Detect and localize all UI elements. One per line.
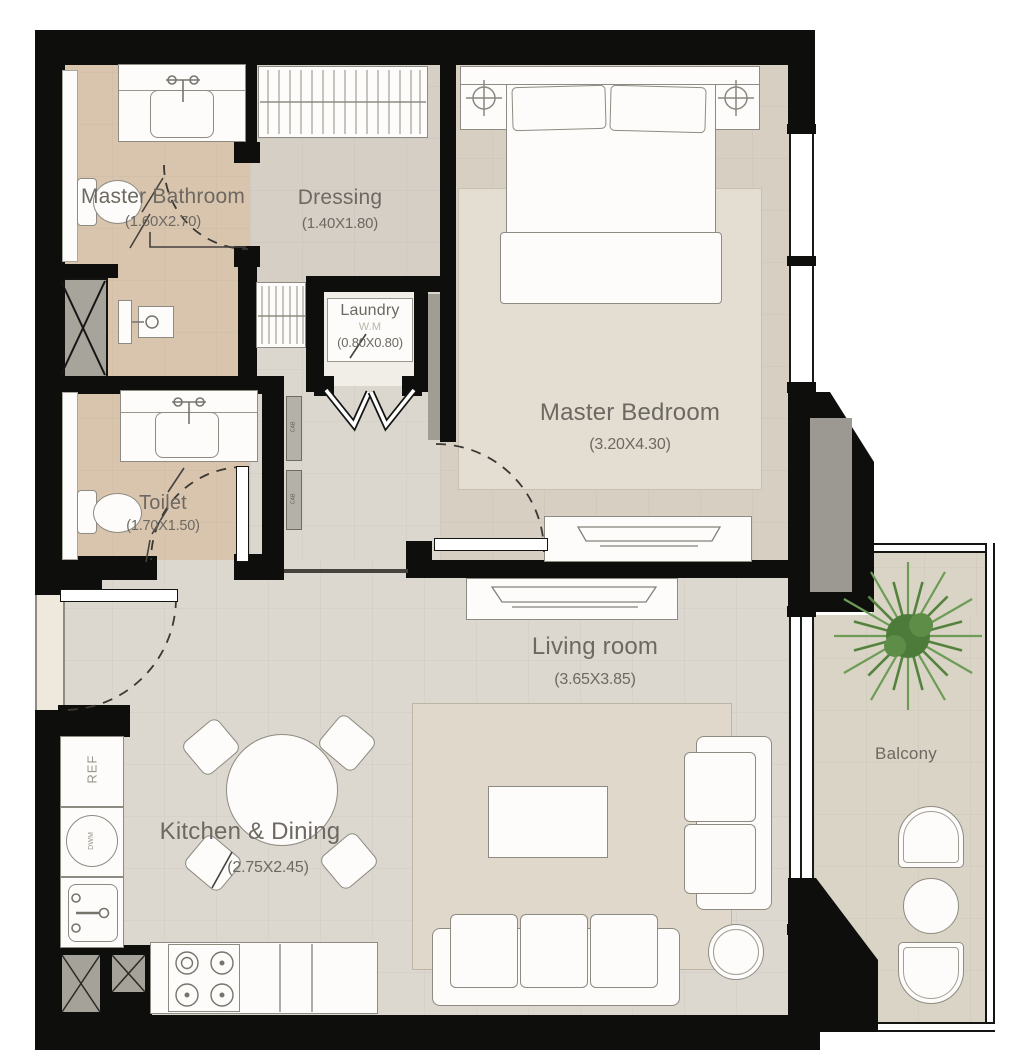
wall-bedroom-left: [440, 60, 456, 442]
refrigerator-label: REF: [60, 762, 124, 776]
cabinet-lower-label-text: CAB: [291, 493, 297, 504]
stove: [168, 944, 240, 1012]
cabinet-upper-label: CAB: [286, 424, 302, 430]
service-shaft-cell-a: [62, 955, 100, 1012]
dressing-dims: (1.40X1.80): [250, 216, 430, 233]
master-bedroom-label: Master Bedroom: [510, 400, 750, 426]
floor-plan: Master Bathroom (1.60X2.70) Dressing (1.…: [0, 0, 1030, 1057]
sofa-cushion-1: [450, 914, 518, 988]
balcony-floor-upper: [872, 548, 990, 620]
balcony-wall-right: [985, 543, 995, 1032]
service-shaft-cell-b: [112, 955, 145, 992]
counter-divider-1: [61, 806, 123, 808]
balcony-wall-top: [872, 543, 995, 553]
wall-bath-dressing-lower: [238, 265, 257, 385]
wall-laundry-top: [306, 276, 445, 292]
counter-divider-2: [61, 876, 123, 878]
wall-top: [35, 30, 815, 65]
toilet-vanity-shelf-line: [121, 390, 257, 413]
dressing-wardrobe: [258, 66, 428, 138]
sofa-cushion-3: [590, 914, 658, 988]
bidet-sprayer-box: [138, 306, 174, 338]
bathroom-sink: [150, 90, 214, 138]
kitchen-sink: [68, 884, 118, 942]
refrigerator-label-text: REF: [85, 755, 99, 784]
balcony-column-top: [788, 392, 874, 612]
side-table-inner-ring: [713, 929, 759, 975]
balcony-table: [903, 878, 959, 934]
bedroom-tv-console: [544, 516, 752, 562]
pillow-right: [609, 85, 706, 133]
pillow-left: [511, 85, 606, 131]
corridor-wardrobe: [256, 282, 306, 348]
cabinet-lower-label: CAB: [286, 496, 302, 502]
balcony-chair-top-inner: [903, 811, 959, 863]
wall-toilet-right: [262, 385, 284, 570]
wall-bedroom-living: [428, 560, 790, 578]
sofa-2seat-cushion-2: [684, 824, 756, 894]
balcony-label: Balcony: [856, 745, 956, 764]
threshold-line: [284, 569, 408, 573]
side-table-round: [708, 924, 764, 980]
dressing-label: Dressing: [250, 186, 430, 209]
balcony-chair-bottom-inner: [903, 947, 959, 999]
toilet-glazing-strip: [62, 392, 78, 560]
dishwasher-label: DWM: [66, 837, 118, 845]
entry-jamb-bottom-stub: [58, 705, 130, 737]
bidet-sprayer-column: [118, 300, 132, 344]
master-bathroom-dims: (1.60X2.70): [63, 214, 263, 231]
toilet-dims: (1.70X1.50): [93, 519, 233, 535]
balcony-glass-door: [789, 612, 814, 932]
wall-bottom: [35, 1015, 820, 1050]
wall-right-column: [788, 30, 815, 127]
laundry-dims: (0.80X0.80): [326, 336, 414, 350]
living-tv-console: [466, 578, 678, 620]
bathroom-glazing-strip: [62, 70, 78, 262]
living-room-dims: (3.65X3.85): [475, 671, 715, 689]
coffee-table: [488, 786, 608, 858]
laundry-wm-label: W.M: [328, 321, 412, 333]
entry-door-leaf: [60, 589, 178, 602]
kitchen-dining-label: Kitchen & Dining: [140, 819, 360, 845]
glass-door-track: [800, 612, 802, 932]
window-sill-bottom: [787, 382, 816, 393]
master-bedroom-dims: (3.20X4.30): [510, 436, 750, 454]
glass-door-jamb-bottom: [787, 924, 816, 935]
nightstand-right: [712, 84, 760, 130]
laundry-jamb-left: [314, 376, 334, 396]
kitchen-dining-dims: (2.75X2.45): [158, 859, 378, 877]
window-divider: [787, 256, 816, 266]
wall-bath-mid-stub: [58, 264, 118, 278]
bathroom-vanity-shelf-line: [119, 64, 245, 91]
living-room-label: Living room: [475, 634, 715, 660]
toilet-label: Toilet: [93, 492, 233, 514]
dishwasher-label-text: DWM: [88, 832, 96, 850]
laundry-jamb-right: [402, 376, 422, 396]
bath-door-jamb-top: [234, 142, 260, 163]
entry-recess: [35, 594, 65, 712]
wall-laundry-left: [306, 276, 324, 392]
glass-door-jamb-top: [787, 606, 816, 617]
shower-tray: [58, 278, 108, 378]
nightstand-left: [460, 84, 508, 130]
master-bathroom-label: Master Bathroom: [63, 185, 263, 208]
wall-left-upper: [35, 30, 65, 595]
toilet-door-leaf: [236, 466, 249, 562]
bath-door-jamb-bottom: [234, 246, 260, 267]
laundry-label: Laundry: [328, 302, 412, 320]
sofa-cushion-2: [520, 914, 588, 988]
sofa-2seat-cushion-1: [684, 752, 756, 822]
cabinet-upper-label-text: CAB: [291, 421, 297, 432]
balcony-chair-top: [898, 806, 964, 868]
toilet-sink: [155, 412, 219, 458]
bed-headboard: [460, 66, 760, 86]
window-sill-top: [787, 124, 816, 134]
wall-finish-strip: [428, 294, 440, 440]
balcony-wall-bottom: [872, 1022, 995, 1032]
bed-duvet: [500, 232, 722, 304]
bedroom-door-leaf: [434, 538, 548, 551]
